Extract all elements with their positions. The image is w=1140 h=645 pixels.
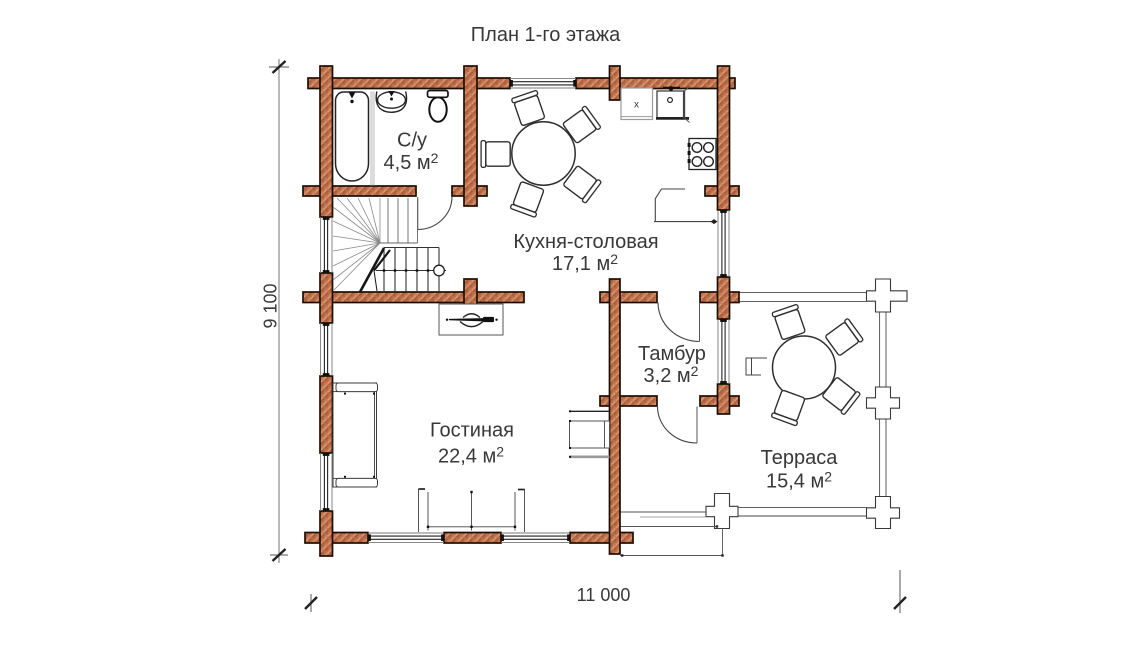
svg-text:x: x <box>634 100 639 111</box>
svg-text:17,1 м2: 17,1 м2 <box>552 251 618 275</box>
svg-text:Кухня-столовая: Кухня-столовая <box>513 231 658 253</box>
svg-text:9 100: 9 100 <box>261 283 281 328</box>
svg-text:4,5 м2: 4,5 м2 <box>384 150 439 174</box>
svg-text:22,4 м2: 22,4 м2 <box>438 444 504 468</box>
svg-text:Тамбур: Тамбур <box>638 343 706 365</box>
svg-text:Гостиная: Гостиная <box>430 420 514 442</box>
svg-text:11 000: 11 000 <box>577 585 631 605</box>
svg-text:Терраса: Терраса <box>761 447 839 469</box>
svg-text:План 1-го этажа: План 1-го этажа <box>471 24 621 46</box>
svg-text:3,2 м2: 3,2 м2 <box>644 363 699 387</box>
svg-text:15,4 м2: 15,4 м2 <box>766 469 832 493</box>
svg-text:С/у: С/у <box>397 130 427 152</box>
